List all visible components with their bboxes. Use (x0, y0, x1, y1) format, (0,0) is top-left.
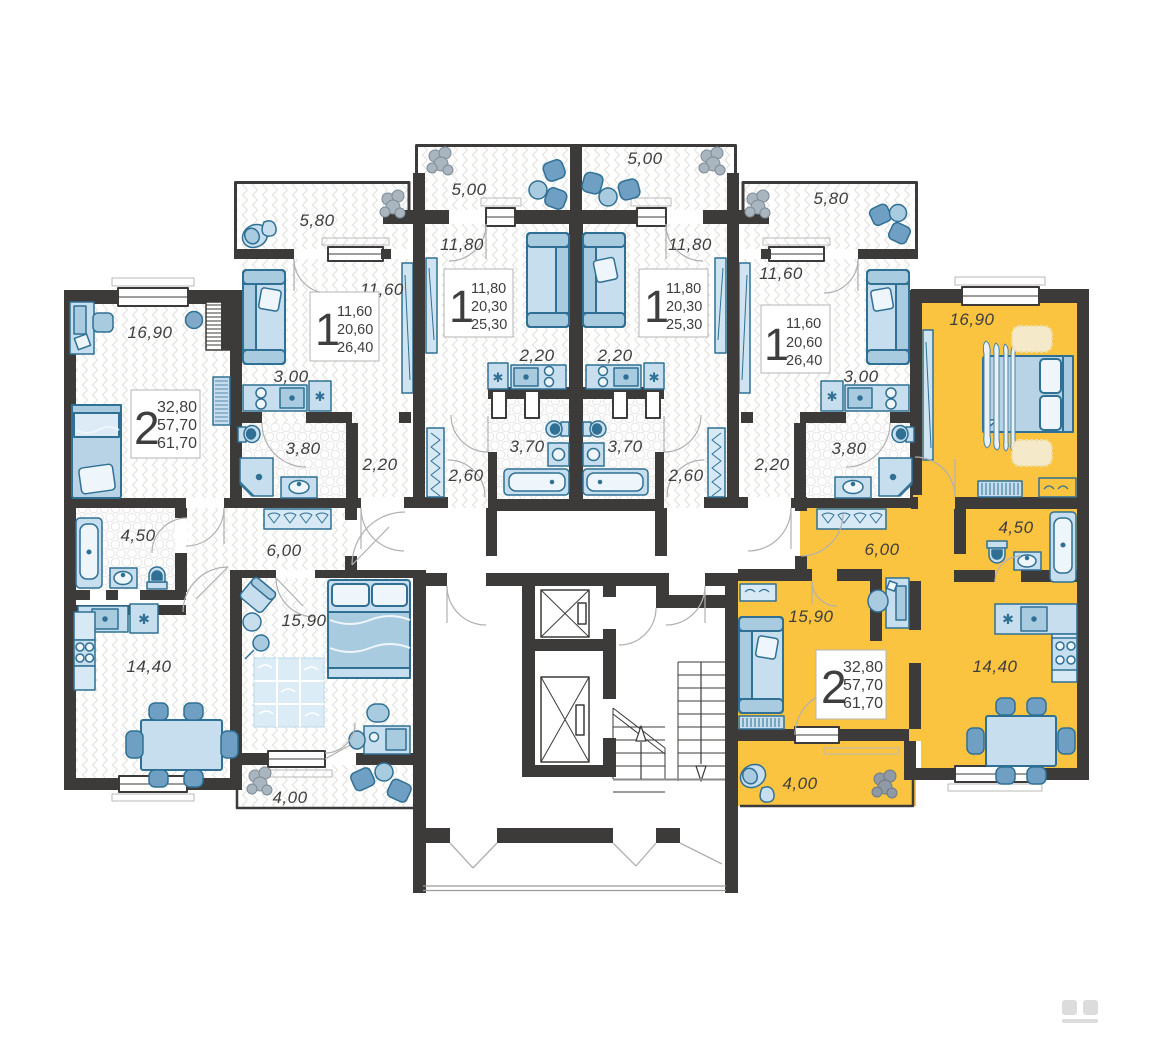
svg-text:6,00: 6,00 (864, 540, 899, 559)
svg-text:3,70: 3,70 (607, 437, 642, 456)
svg-text:16,90: 16,90 (127, 323, 172, 342)
svg-text:11,60: 11,60 (337, 304, 372, 320)
svg-text:15,90: 15,90 (281, 611, 326, 630)
svg-text:4,00: 4,00 (782, 774, 817, 793)
svg-text:2: 2 (134, 402, 160, 454)
svg-text:3,00: 3,00 (273, 367, 308, 386)
svg-text:2,20: 2,20 (753, 455, 789, 474)
svg-text:6,00: 6,00 (266, 541, 301, 560)
svg-text:2,60: 2,60 (447, 466, 483, 485)
svg-text:26,40: 26,40 (786, 353, 822, 369)
svg-text:3,80: 3,80 (285, 439, 320, 458)
svg-text:4,00: 4,00 (272, 788, 307, 807)
svg-text:3,80: 3,80 (831, 439, 866, 458)
svg-text:25,30: 25,30 (666, 317, 702, 333)
svg-text:57,70: 57,70 (843, 677, 883, 694)
svg-text:✱: ✱ (1002, 611, 1014, 627)
svg-text:2,20: 2,20 (361, 455, 397, 474)
svg-text:61,70: 61,70 (843, 695, 883, 712)
svg-text:11,80: 11,80 (668, 235, 712, 254)
svg-text:✱: ✱ (315, 389, 326, 404)
svg-text:11,80: 11,80 (440, 235, 484, 254)
svg-text:26,40: 26,40 (337, 340, 373, 356)
svg-text:20,60: 20,60 (337, 322, 373, 338)
svg-text:5,80: 5,80 (813, 189, 848, 208)
svg-text:57,70: 57,70 (157, 417, 197, 434)
svg-text:2,20: 2,20 (596, 346, 632, 365)
svg-text:61,70: 61,70 (157, 435, 197, 452)
svg-text:32,80: 32,80 (843, 659, 883, 676)
svg-text:11,80: 11,80 (471, 281, 506, 297)
svg-text:4,50: 4,50 (120, 526, 155, 545)
svg-text:11,60: 11,60 (786, 316, 821, 332)
svg-text:14,40: 14,40 (126, 657, 171, 676)
svg-text:32,80: 32,80 (157, 399, 197, 416)
svg-text:3,00: 3,00 (843, 367, 878, 386)
svg-text:11,80: 11,80 (666, 281, 701, 297)
svg-text:✱: ✱ (138, 611, 150, 627)
svg-text:11,60: 11,60 (759, 264, 803, 283)
svg-text:3,70: 3,70 (509, 437, 544, 456)
svg-text:5,80: 5,80 (299, 211, 334, 230)
svg-text:5,00: 5,00 (451, 180, 486, 199)
svg-text:20,30: 20,30 (471, 299, 507, 315)
svg-text:✱: ✱ (493, 370, 504, 385)
svg-text:2,20: 2,20 (518, 346, 554, 365)
svg-text:20,60: 20,60 (786, 335, 822, 351)
svg-text:2,60: 2,60 (667, 466, 703, 485)
svg-text:15,90: 15,90 (788, 607, 833, 626)
svg-text:20,30: 20,30 (666, 299, 702, 315)
svg-text:14,40: 14,40 (972, 657, 1017, 676)
svg-text:4,50: 4,50 (998, 518, 1033, 537)
svg-text:16,90: 16,90 (949, 310, 994, 329)
svg-text:5,00: 5,00 (627, 149, 662, 168)
svg-text:25,30: 25,30 (471, 317, 507, 333)
